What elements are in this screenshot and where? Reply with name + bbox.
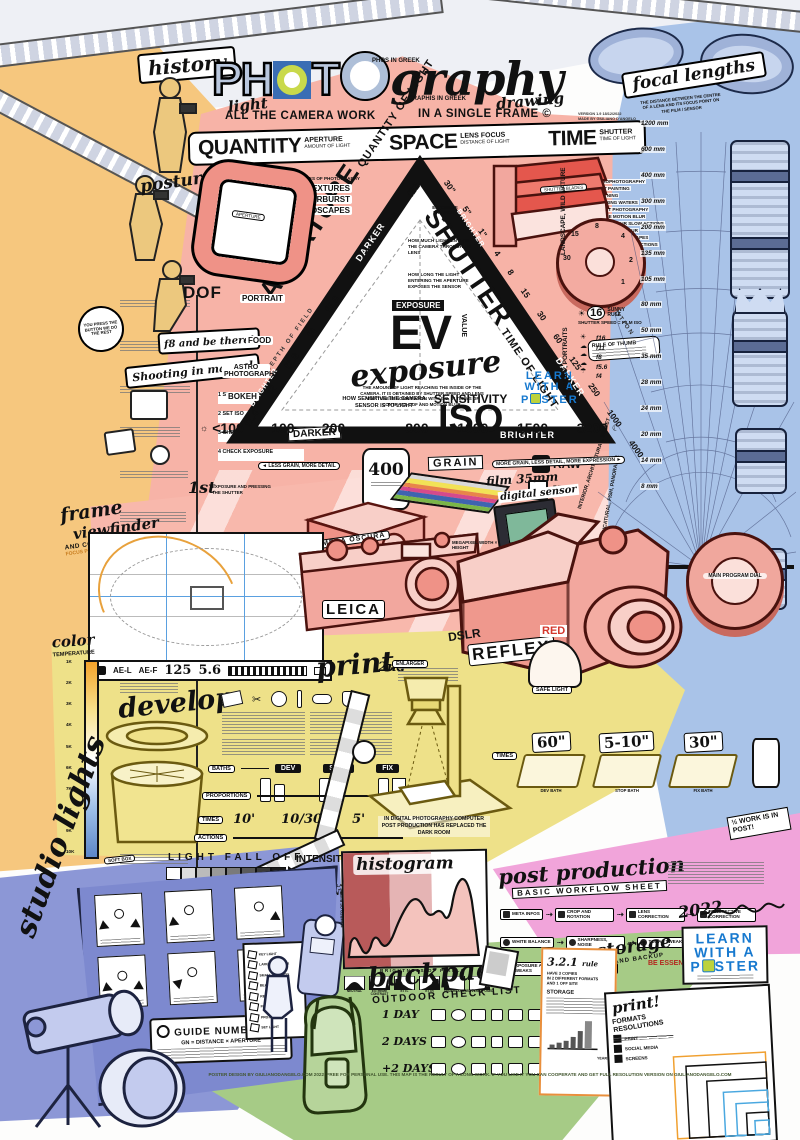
iso-value: 100 (271, 420, 294, 436)
dial-num: 15 (571, 231, 579, 238)
step-label: META INFOS (512, 912, 540, 917)
times-label: TIMES (198, 816, 223, 824)
tray-time: 30" (683, 731, 723, 753)
tray-shape (592, 754, 662, 788)
histogram-curve (345, 869, 481, 959)
checklist-row: 1 DAY (382, 1008, 563, 1021)
grain-left-arrow: ◄ LESS GRAIN, MORE DETAIL (258, 462, 340, 470)
shutter-note: HOW LONG THE LIGHT ENTERING THE APERTURE… (408, 272, 478, 290)
gear-icon (431, 1009, 446, 1021)
histogram-ylabel: NUMBER OF PIXELS (339, 888, 345, 928)
gear-icon (508, 1009, 523, 1021)
gear-icon (451, 1036, 466, 1048)
camera-doodle (103, 428, 136, 456)
workflow-step: CROP AND ROTATION (555, 908, 614, 922)
clouds-icon: ☁ (580, 360, 587, 367)
lighting-scheme-card (94, 893, 145, 947)
exposure-meter-icon (228, 666, 307, 676)
hud-aef: AE-F (139, 666, 158, 675)
studio-strobe-dome (82, 1038, 202, 1138)
storage-rule-number: 3.2.1 (547, 955, 578, 969)
tray-time: 60" (531, 731, 571, 753)
poster-icon (702, 959, 715, 972)
backpack-rows: 1 DAY 2 DAYS +2 DAYS (382, 1008, 563, 1075)
baths-label: BATHS (208, 765, 235, 773)
backpack-illustration (288, 985, 393, 1120)
footer-credit: POSTER DESIGN BY GIULIANODANGELO.COM 202… (190, 1072, 750, 1077)
format-rectangles (671, 1050, 771, 1140)
petal-hood (734, 288, 786, 314)
colortemp-tick: 3K (66, 702, 74, 707)
workflow-step: LENS CORRECTION (626, 908, 685, 922)
lwp-poster: PSTER (521, 393, 579, 406)
colortemp-tick: 2K (66, 681, 74, 686)
dev-arrow (241, 768, 269, 770)
focal-mm: 14 mm (640, 457, 662, 464)
bath-step: DEV (275, 764, 301, 773)
lighting-scheme-card (234, 885, 285, 939)
step-label: LENS CORRECTION (638, 910, 682, 920)
focal-cat1: LANDSCAPE, WILD NATURE (560, 167, 567, 255)
iso-value: 200 (322, 420, 345, 436)
gear-icon (491, 1009, 503, 1021)
subtitle-left: ALL THE CAMERA WORK (225, 110, 376, 122)
focal-cat2: MACRO, PORTRAITS (562, 327, 569, 392)
focal-mm-list: 1200 mm600 mm400 mm300 mm200 mm135 mm105… (640, 120, 669, 490)
step-icon (629, 911, 636, 918)
focal-mm: 24 mm (640, 405, 662, 412)
program-dial-label: MAIN PROGRAM DIAL (703, 573, 767, 579)
focal-mm: 400 mm (640, 172, 666, 179)
storage-rule-word: rule (582, 959, 598, 968)
subtitle-right: IN A SINGLE FRAME © (418, 108, 551, 120)
iso-value: 1500 (517, 420, 548, 436)
iso-value: 800 (405, 420, 428, 436)
film-clip-icon (221, 690, 243, 708)
gear-icon (451, 1009, 466, 1021)
gear-icon (471, 1036, 486, 1048)
focal-mm: 50 mm (640, 327, 662, 334)
red-label: RED (540, 625, 567, 637)
viewfinder-hud: AE-L AE-F 125 5.6 (88, 660, 332, 681)
cat-food: FOOD (246, 336, 273, 345)
aperture-note: HOW MUCH LIGHT ENTERS THE CAMERA THROUGH… (408, 238, 474, 256)
histogram-title: histogram (353, 853, 457, 875)
hud-fnum: 5.6 (198, 663, 221, 678)
lwp-poster: PSTER (689, 958, 761, 973)
focal-mm: 8 mm (640, 483, 659, 490)
checklist-row: 2 DAYS (382, 1035, 563, 1048)
focal-mm: 600 mm (640, 146, 666, 153)
iso-value: 1000 (457, 420, 488, 436)
step-icon (503, 911, 510, 918)
row-label: 1 DAY (382, 1008, 426, 1021)
lwp-witha: WITH A (521, 382, 579, 393)
gear-icon (508, 1036, 523, 1048)
actions-label: ACTIONS (194, 834, 227, 842)
darkroom-tray: 60" DEV BATH (520, 732, 582, 793)
storage-years: YEARS (545, 1055, 609, 1060)
hud-speed: 125 (164, 663, 191, 678)
gear-icon (431, 1036, 446, 1048)
thermometer-icon (297, 690, 302, 708)
hud-ael: AE-L (113, 666, 132, 675)
step-icon (503, 939, 510, 946)
bulb-doodle (150, 445, 170, 465)
proportions-label: PROPORTIONS (202, 792, 251, 800)
storage-chart (545, 1016, 600, 1051)
shutter-value: 8 (505, 267, 516, 277)
darkroom-tray: 5-10" STOP BATH (596, 732, 658, 793)
enlarger (360, 668, 520, 833)
colortemp-tick: 1K (66, 660, 74, 665)
zoom-lens (732, 308, 788, 407)
tray-name: FIX BATH (672, 788, 734, 793)
aperture-ring-label: APERTURE (232, 210, 266, 222)
colortemp-tick: 4K (66, 723, 74, 728)
focal-mm: 28 mm (640, 379, 662, 386)
sun-icon: ☼ (200, 423, 208, 433)
step-icon (569, 939, 576, 946)
develop-actions-row: ACTIONS (194, 834, 403, 842)
enlarger-label: ENLARGER (392, 660, 428, 668)
iso-scale: ☼ <100100200 800100015003200 ☾ (200, 420, 620, 436)
legend-swatch (614, 1045, 622, 1053)
falloff-cell (181, 867, 196, 880)
focal-mm: 1200 mm (640, 120, 669, 127)
prime-lens (735, 428, 787, 494)
iso-value: <100 (212, 420, 244, 436)
qst-sub2: DISTANCE OF LIGHT (460, 139, 509, 146)
timer-icon (352, 740, 376, 764)
title-o1: O (273, 61, 311, 99)
kodak-slogan: YOU PRESS THE BUTTON WE DO THE REST (79, 320, 122, 339)
tray-name: STOP BATH (596, 788, 658, 793)
learn-with-a-poster-logo: LEARN WITH A PSTER (516, 368, 584, 409)
colortemp-title: color TEMPERATURE (51, 631, 95, 659)
storage-label: STORAGE (546, 989, 610, 996)
lighting-scheme-card (164, 889, 215, 943)
focal-mm: 135 mm (640, 250, 666, 257)
legend-label: SCREENS (625, 1055, 647, 1061)
gear-icon (471, 1009, 486, 1021)
program-dial: MAIN PROGRAM DIAL (686, 532, 784, 630)
print-trays: 60" DEV BATH 5-10" STOP BATH 30" FIX BAT… (520, 732, 734, 793)
polaroid (479, 945, 519, 990)
first-exposure-sub: EXPOSURE AND PRESSING THE SHUTTER (212, 484, 272, 495)
step-icon (558, 911, 565, 918)
darkroom-tray: 30" FIX BATH (672, 732, 734, 793)
goggles-icon (312, 694, 332, 704)
postprod-intro (668, 862, 764, 884)
developing-tank (100, 714, 215, 849)
rain-icon: ☂ (580, 368, 587, 375)
telephoto-lens (730, 140, 790, 299)
focal-mm: 105 mm (640, 276, 666, 283)
value-label: VALUE (460, 314, 467, 337)
storage-line3: AND 1 OFF SITE (547, 980, 611, 986)
scissors-icon: ✂ (252, 693, 261, 706)
step-label: WHITE BALANCE (512, 940, 551, 945)
legend-label: SOCIAL MEDIA (625, 1045, 659, 1052)
focal-mm: 35 mm (640, 353, 662, 360)
print-note: IN DIGITAL PHOTOGRAPHY COMPUTER POST PRO… (378, 816, 490, 837)
sun-icon: ☀ (580, 334, 587, 341)
focal-mm: 300 mm (640, 198, 666, 205)
photography-poster: history posture DOF YOU PRESS THE BUTTON… (0, 0, 800, 1140)
signature-flourish (706, 896, 786, 926)
leica-label: LEICA (322, 600, 385, 619)
falloff-title: LIGHT FALL OFF (168, 852, 304, 863)
focal-mm: 20 mm (640, 431, 662, 438)
cat-portrait: PORTRAIT (240, 294, 285, 303)
film-roll-iso: 400 (364, 460, 408, 480)
aperture-ring: APERTURE (191, 159, 317, 285)
cat-astro: ASTRO PHOTOGRAPHY (222, 364, 270, 378)
poster-icon (530, 393, 541, 404)
weather-icons: ☀ ☁ ☁ ☁ ☂ (580, 334, 587, 375)
dial-num: 30 (563, 255, 571, 262)
gear-icon (491, 1036, 503, 1048)
print-times-label: TIMES (492, 752, 517, 760)
tray-shape (516, 754, 586, 788)
tray-shape (668, 754, 738, 788)
develop-tools: ✂ (222, 690, 356, 708)
reel-icon (271, 691, 287, 707)
safelight-label: SAFE LIGHT (532, 686, 572, 694)
cloud-icon: ☁ (580, 351, 587, 358)
wash-cylinder (752, 738, 780, 788)
focal-mm: 200 mm (640, 224, 666, 231)
title-t: T (312, 53, 340, 105)
camera-doodle (130, 390, 168, 420)
colortemp-word: color (51, 631, 95, 652)
row-label: 2 DAYS (382, 1035, 426, 1048)
sun-cloud-icon: ☁ (580, 343, 587, 350)
legend-swatch (614, 1055, 622, 1063)
printfmt-card: print! FORMATS RESOLUTIONS PRINT SOCIAL … (604, 984, 778, 1140)
cat-bokeh: BOKEH (226, 392, 259, 401)
tray-time: 5-10" (599, 731, 655, 754)
tray-name: DEV BATH (520, 788, 582, 793)
iso-note: HOW SENSITIVE THE CAMERA SENSOR IS TO LI… (338, 396, 430, 411)
learn-with-a-poster-logo: LEARN WITH A PSTER (682, 925, 769, 984)
sun-icon: ☀ (578, 309, 585, 318)
develop-time: 10' (233, 812, 255, 827)
workflow-step: META INFOS (500, 909, 543, 920)
falloff-cell (166, 867, 181, 880)
histogram-card: histogram NUMBER OF PIXELS (341, 849, 489, 970)
focal-mm: 80 mm (640, 301, 662, 308)
step-label: CROP AND ROTATION (567, 910, 611, 920)
grain-label: GRAIN (428, 455, 484, 471)
